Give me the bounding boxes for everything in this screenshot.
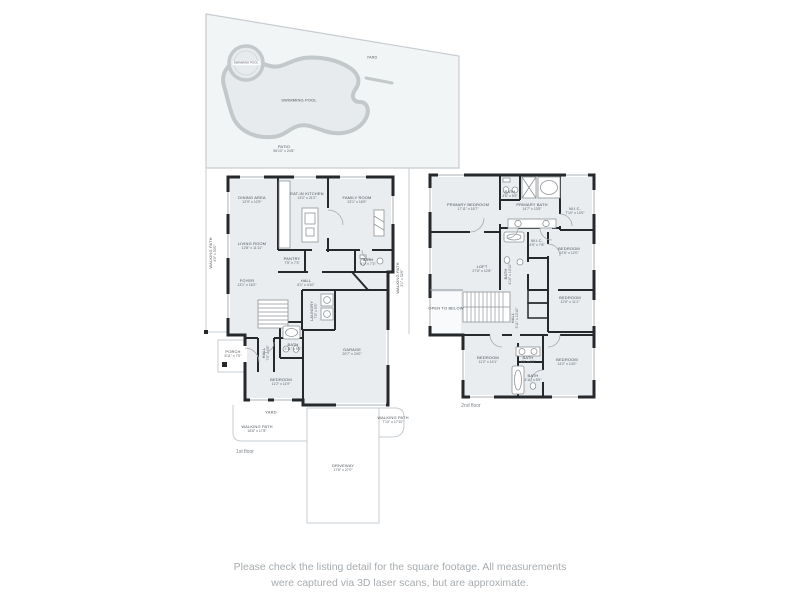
washer — [321, 294, 333, 306]
room-label-family: FAMILY ROOM23'1" x 18'9" — [342, 195, 371, 205]
floor2-stairs — [463, 292, 510, 322]
disclaimer-line-2: were captured via 3D laser scans, but ar… — [0, 575, 800, 591]
disclaimer-line-1: Please check the listing detail for the … — [0, 559, 800, 575]
bath-mid-toilet — [504, 257, 510, 264]
room-label-powder: BATH4'0" x 7'3" — [360, 257, 375, 267]
room-label-hall-lower: HALL7'0" x 4'8" — [261, 345, 271, 360]
room-label-primary-bedroom: PRIMARY BEDROOM17'11" x 16'7" — [447, 202, 489, 212]
yard-small-label: YARD — [265, 409, 276, 414]
room-label-hall2: HALL3'11" x 13'10" — [510, 308, 520, 329]
room-label-bedroom-left: BEDROOM11'2" x 14'1" — [477, 355, 499, 365]
floor1-stairs — [258, 300, 288, 328]
open-to-below-label: OPEN TO BELOW — [428, 305, 463, 310]
room-label-bedroom1: BEDROOM11'2" x 11'9" — [270, 377, 292, 387]
dryer — [321, 308, 333, 320]
room-label-wic-large: W.I.C.7'10" x 13'0" — [565, 206, 584, 216]
room-label-primary-bath: PRIMARY BATH14'7" x 13'5" — [516, 202, 547, 212]
primary-vanity — [508, 219, 556, 228]
patio-label: PATIO56'10" x 24'8" — [273, 144, 294, 154]
room-label-bath-top: BATH4'6" x 5'5" — [502, 189, 517, 199]
floor2-caption: 2nd floor — [461, 403, 480, 410]
spa-label: SWIMMING POOL — [233, 61, 260, 65]
powder-sink — [377, 258, 383, 264]
room-label-bedroom-tr: BEDROOM12'0" x 11'1" — [559, 295, 581, 305]
room-label-bath-mid: BATH4'10" x 10'10" — [503, 263, 513, 284]
driveway-label: DRIVEWAY17'8" x 27'0" — [332, 463, 354, 473]
room-label-wic-small: W.I.C.4'5" x 7'8" — [529, 238, 544, 248]
room-label-kitchen: EAT-IN KITCHEN13'2" x 21'2" — [290, 191, 323, 201]
porch-label: PORCH8'11" x 7'0" — [225, 349, 242, 359]
disclaimer-text: Please check the listing detail for the … — [0, 559, 800, 592]
bath-c2-toilet — [530, 383, 536, 390]
room-label-loft: LOFT27'6" x 12'6" — [472, 264, 491, 274]
floorplan-canvas: YARD SWIMMING POOL SWIMMING POOL PATIO56… — [0, 0, 800, 600]
room-label-garage: GARAGE20'7" x 24'0" — [342, 347, 361, 357]
room-label-bath-c2: BATH4'11" x 8'5" — [525, 373, 542, 383]
room-label-bath-c1: BATH4'5" x 5'1" — [520, 355, 535, 365]
open-to-below-area — [432, 292, 461, 333]
room-label-pantry: PANTRY7'5" x 7'3" — [284, 256, 301, 266]
floorplan-drawing — [0, 0, 800, 600]
kitchen-counter — [279, 181, 290, 248]
room-label-dining: DINING AREA12'9" x 12'9" — [238, 195, 265, 205]
bath-mid-sink — [517, 259, 523, 265]
walking-path-right-label: WALKING PATH3'1" x 52'6" — [395, 262, 405, 293]
pool-label: SWIMMING POOL — [281, 97, 317, 102]
walking-path-left-label: WALKING PATH4'0" x 53'0" — [208, 237, 218, 268]
floor1-caption: 1st floor — [236, 449, 254, 456]
room-label-bedroom-right: BEDROOM14'2" x 14'0" — [556, 357, 578, 367]
porch-post — [222, 362, 227, 367]
room-label-laundry: LAUNDRY7'0" x 5'5" — [309, 301, 319, 321]
walking-path-br-label: WALKING PATH7'10" x 17'10" — [377, 415, 408, 425]
room-label-living: LIVING ROOM12'8" x 11'11" — [238, 241, 266, 251]
room-label-bedroom-mid: BEDROOM12'5" x 12'0" — [558, 246, 580, 256]
room-label-foyer: FOYER13'1" x 16'2" — [237, 278, 256, 288]
walking-path-bl-label: WALKING PATH18'8" x 17'8" — [241, 424, 272, 434]
yard-label: YARD — [367, 56, 378, 61]
room-label-hall-upper: HALL8'1" x 4'10" — [297, 278, 314, 288]
floor1-plan — [218, 177, 404, 523]
fireplace — [374, 210, 384, 236]
room-label-bath1: BATH5'11" x 8'0" — [285, 342, 302, 352]
